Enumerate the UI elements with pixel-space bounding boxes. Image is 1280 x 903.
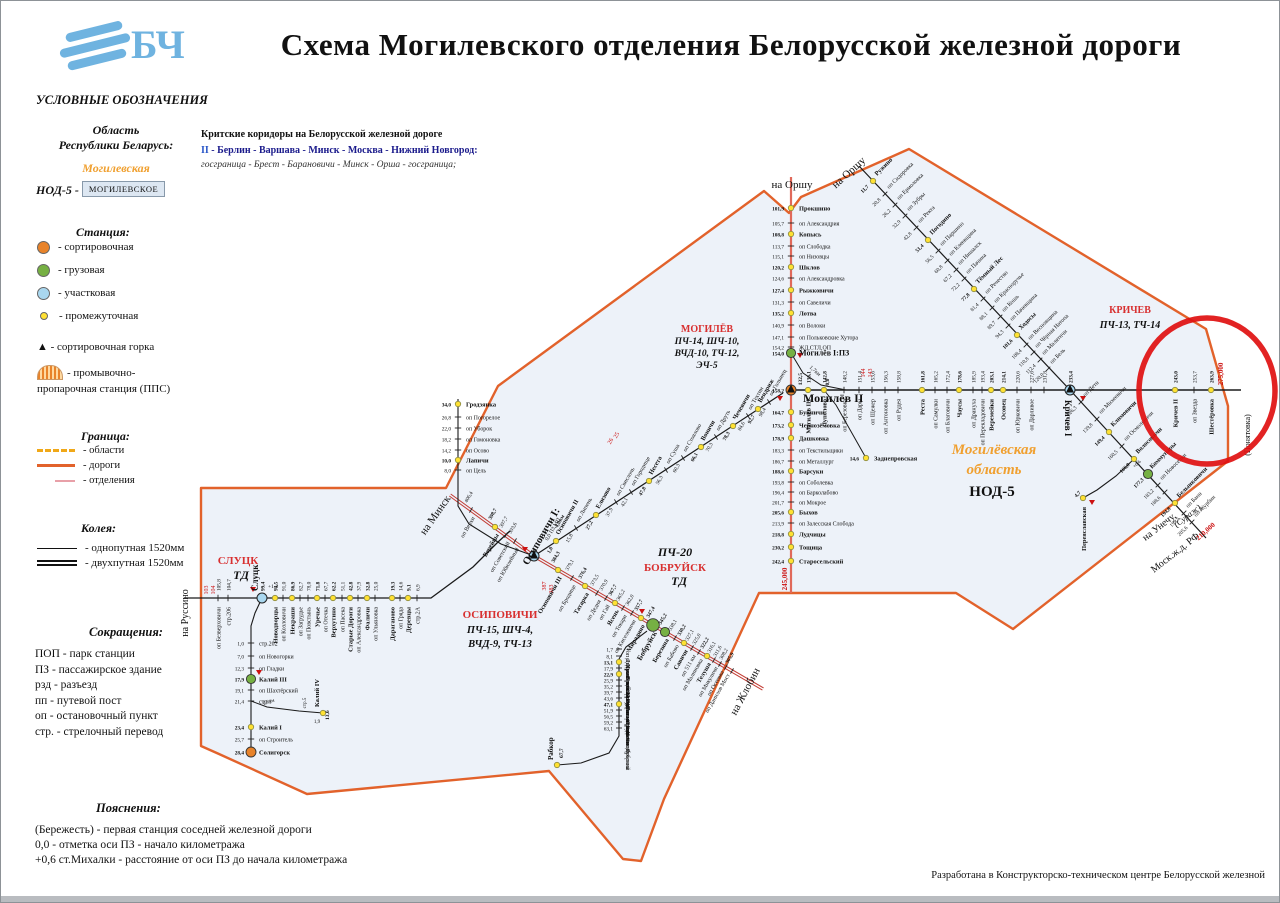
map-label-387: 387: [542, 582, 548, 591]
station-km-Буйничи: 164,7: [772, 411, 784, 417]
station-km-оп Березовка: 148,2: [843, 371, 849, 383]
station-name-оп Савеличи: оп Савеличи: [799, 301, 832, 307]
station-km-стр.1: 21,4: [235, 700, 245, 706]
station-dot-Ясень: [612, 600, 617, 605]
station-km-231,8: 231,8: [1043, 371, 1049, 383]
station-km-Солигорск: 28,4: [235, 751, 245, 757]
station-km-оп Слободка: 113,7: [772, 245, 784, 251]
station-name-оп Гладки: оп Гладки: [259, 667, 285, 673]
station-name-оп Пасека: оп Пасека: [341, 607, 347, 633]
map-label-ПЧ-15, ШЧ-4,: ПЧ-15, ШЧ-4,: [466, 625, 533, 636]
map-label-ОСИПОВИЧИ: ОСИПОВИЧИ: [463, 609, 538, 621]
station-dot-Коммунары: [1143, 469, 1152, 478]
station-name-Прокшино: Прокшино: [799, 206, 830, 213]
station-km-Дашковка: 178,9: [772, 437, 784, 443]
station-name-Деревцы: Деревцы: [406, 607, 413, 633]
station-dot-Климовичи: [1106, 429, 1111, 434]
station-dot-Дараганово: [389, 595, 394, 600]
station-km-оп Александрия: 105,7: [772, 222, 784, 228]
station-name-оп Металлург: оп Металлург: [799, 460, 834, 466]
station-dot-Несета: [646, 478, 651, 483]
station-km-оп Юрковичи: 220,6: [1016, 371, 1022, 383]
station-km-оп Савеличи: 131,3: [772, 301, 784, 307]
station-km-оп Дедново: 1,7: [606, 648, 613, 654]
station-dot-Верейцы: [492, 524, 497, 529]
station-name-оп Самулки: оп Самулки: [934, 398, 940, 428]
road-border: [201, 149, 1228, 861]
station-km-Фаличи: 32,8: [366, 581, 372, 591]
station-dot-Татарка: [582, 583, 587, 588]
map-label-Калий IV: Калий IV: [314, 679, 321, 707]
station-dot-Чаусы: [956, 387, 961, 392]
map-label-ВЧД-9, ТЧ-13: ВЧД-9, ТЧ-13: [467, 639, 532, 650]
station-dot-Дашковка: [788, 435, 793, 440]
map-label-143: 143: [868, 369, 874, 378]
station-name-стр.2А: стр.2А: [416, 606, 422, 624]
station-name-оп Текстильщики: оп Текстильщики: [799, 449, 844, 455]
map-label-210,000: 210,000: [1195, 521, 1218, 543]
station-name-оп Рудея: оп Рудея: [897, 399, 903, 421]
station-name-Шестёровка: Шестёровка: [1209, 398, 1216, 434]
station-km-Осовец: 214,1: [1002, 371, 1008, 383]
station-dot-Лапичи: [455, 457, 460, 462]
station-dot-Уречье: [314, 595, 319, 600]
station-name-Быхов: Быхов: [799, 510, 818, 517]
footer-credit: Разработана в Конструкторско-техническом…: [931, 870, 1265, 881]
map-label-144: 144: [861, 369, 867, 378]
station-km-оп Козловичи: 91,0: [282, 581, 288, 591]
map-label-ЭЧ-5: ЭЧ-5: [696, 361, 717, 371]
station-km-оп Дарливое: 227,6: [1030, 371, 1036, 383]
station-dot-Осиповичи II: [553, 538, 558, 543]
station-dot-Калий I: [248, 724, 253, 729]
station-dot-Ратмировичи: [616, 701, 621, 706]
station-dot-Лотва: [788, 310, 793, 315]
station-dot-Могилёв I:ПЗ: [786, 348, 795, 357]
station-name-Фаличи: Фаличи: [365, 607, 372, 631]
map-label-+1,3: +1,3: [268, 584, 278, 590]
station-name-оп Мокрое: оп Мокрое: [799, 501, 826, 507]
station-name-оп Ульяновка: оп Ульяновка: [374, 607, 380, 641]
map-label-132,5: 132,5: [798, 373, 804, 386]
station-km-Лапичи: 10,0: [442, 459, 452, 465]
map-label-104: 104: [211, 586, 217, 595]
map-label-Рабкор: Рабкор: [547, 737, 555, 760]
station-dot-Переяславская: [1080, 495, 1085, 500]
station-km-стр.2А: 6,9: [416, 584, 422, 591]
map-label-ТД: ТД: [233, 568, 250, 582]
station-name-Лапичи: Лапичи: [466, 458, 489, 465]
station-km-Старосельский: 242,4: [772, 560, 784, 566]
station-km-оп Звезда: 253,7: [1193, 371, 1199, 383]
station-dot-Реста: [919, 387, 924, 392]
station-km-оп Уборок: 22,0: [442, 427, 452, 433]
station-name-оп Низовцы: оп Низовцы: [799, 255, 829, 261]
station-name-стр.206: стр.206: [227, 607, 233, 626]
map-label-КРИЧЕВ: КРИЧЕВ: [1109, 305, 1151, 316]
station-name-Уречье: Уречье: [315, 607, 322, 627]
station-km-оп Безверховичи: 105,8: [217, 579, 223, 591]
map-label-Слуцк: Слуцк: [250, 564, 260, 591]
map-label-1,9: 1,9: [314, 720, 321, 725]
station-dot-Тёмный Лес: [971, 286, 976, 291]
station-km-оп Текстильщики: 183,3: [772, 449, 784, 455]
station-name-оп Шахтёрский: оп Шахтёрский: [259, 688, 299, 695]
station-km-оп Металлург: 186,7: [772, 460, 784, 466]
station-dot-Веремейки: [988, 387, 993, 392]
station-name-Могилёв I:ПЗ: Могилёв I:ПЗ: [799, 349, 849, 358]
map-label-245,000: 245,000: [781, 567, 789, 590]
station-name-оп Волоки: оп Волоки: [799, 324, 826, 330]
station-name-оп Барколабово: оп Барколабово: [799, 490, 838, 497]
station-km-оп Отечка: 67,7: [324, 581, 330, 591]
station-name-Реста: Реста: [920, 398, 927, 415]
station-name-оп Загрудье: оп Загрудье: [299, 607, 305, 637]
station-dot-Осовец: [1000, 387, 1005, 392]
station-name-Кричев II: Кричев II: [1173, 398, 1180, 427]
station-name-оп Погорелое: оп Погорелое: [466, 416, 501, 422]
station-dot-Телуша: [704, 653, 709, 658]
station-name-оп Щежер: оп Щежер: [871, 399, 877, 425]
station-km-оп Повстынь: 78,0: [307, 581, 313, 591]
station-name-Барсуки: Барсуки: [799, 469, 824, 476]
station-name-оп Соболевка: оп Соболевка: [799, 480, 833, 487]
station-dot-Чечевичи: [730, 423, 735, 428]
station-km-оп Цель: 8,0: [444, 469, 451, 475]
station-name-оп Дрануха: оп Дрануха: [972, 399, 978, 428]
station-dot-Погодино: [925, 237, 930, 242]
station-dot-Лудчицы: [788, 531, 793, 536]
station-dot-Кричев II: [1172, 387, 1177, 392]
station-name-Переяславская: Переяславская: [1081, 506, 1088, 550]
station-dot-Барсуки: [788, 468, 793, 473]
station-km-Дараганово: 19,3: [391, 581, 397, 591]
station-km-оп Рудея: 158,8: [897, 371, 903, 383]
map-label-383: 383: [549, 585, 555, 594]
map-label-Моск.ж.д. РФ: Моск.ж.д. РФ: [1149, 531, 1202, 576]
map-label-ПЧ-20: ПЧ-20: [657, 545, 692, 559]
station-dot-Красный Брод: [616, 659, 621, 664]
station-dot-Белынковичи: [1172, 500, 1177, 505]
station-km-Лотва: 135,2: [772, 312, 784, 318]
station-dot-Копысь: [788, 231, 793, 236]
station-name-Новодворцы: Новодворцы: [273, 607, 280, 644]
station-name-оп Строитель: оп Строитель: [259, 738, 293, 744]
station-dot-station: [554, 762, 559, 767]
station-km-Веремейки: 203,1: [990, 371, 996, 383]
station-name-оп Осово: оп Осово: [466, 449, 489, 455]
station-name-Чаусы: Чаусы: [957, 399, 964, 417]
bottom-band: [1, 896, 1279, 902]
map-label-Могилёвская: Могилёвская: [951, 442, 1037, 458]
station-km-оп Барколабово: 196,4: [772, 491, 784, 497]
station-dot-Заднепровская: [863, 455, 868, 460]
station-dot-99,4: [257, 593, 267, 603]
station-name-Заднепровская: Заднепровская: [874, 456, 918, 463]
station-dot-Чернозёмовка: [788, 422, 793, 427]
station-km-оп Волоки: 140,9: [772, 324, 784, 330]
station-km-Гродзянка: 34,0: [442, 403, 452, 409]
station-km-стр.206: 104,7: [227, 579, 233, 591]
map-label-на Руссино: на Руссино: [180, 589, 191, 636]
station-dot-Бобруйск: [647, 619, 660, 632]
station-dot-Волосовичи: [1131, 456, 1136, 461]
station-dot-Гродзянка: [455, 401, 460, 406]
station-name-оп Благовичи: оп Благовичи: [946, 398, 952, 433]
station-km-оп Дрануха: 185,9: [972, 371, 978, 383]
station-dot-Мирадино: [638, 615, 643, 620]
station-km-Старые Дороги: 42,8: [349, 581, 355, 591]
station-dot-Новодворцы: [272, 595, 277, 600]
station-dot-Тощица: [788, 544, 793, 549]
station-km-Могилёв I:ПЗ: 154,0: [772, 352, 784, 358]
map-label-ТД: ТД: [671, 574, 688, 588]
station-km-оп Загрудье: 82,7: [299, 581, 305, 591]
station-km-Чернозёмовка: 173,2: [772, 424, 784, 430]
station-name-стр.202: стр.202: [259, 642, 278, 648]
station-dot-Старые Дороги: [347, 595, 352, 600]
station-km-оп Мокрое: 201,7: [772, 501, 784, 507]
station-dot-Верхутино: [330, 595, 335, 600]
station-km-оп Ульяновка: 25,0: [374, 581, 380, 591]
station-dot-Калий III: [246, 674, 255, 683]
station-km-Рыжковичи: 127,4: [772, 289, 784, 295]
station-km-оп Погорелое: 26,8: [442, 416, 452, 422]
map-label-стр.5: стр.5: [303, 697, 308, 708]
station-dot-Прокшино: [788, 205, 793, 210]
station-name-оп Перекладовичи: оп Перекладовичи: [981, 398, 987, 445]
station-name-оп Звезда: оп Звезда: [1193, 399, 1199, 423]
station-name-оп Новогорки: оп Новогорки: [259, 655, 294, 661]
station-name-Рыжковичи: Рыжковичи: [799, 288, 834, 295]
station-name-Копысь: Копысь: [799, 232, 822, 239]
station-dot-Савичи: [681, 640, 686, 645]
station-name-оп Александровка: оп Александровка: [357, 607, 363, 653]
station-km-оп Низовцы: 115,1: [772, 255, 784, 261]
station-dot-Воничи: [698, 444, 703, 449]
map-label-МОГИЛЁВ: МОГИЛЁВ: [681, 322, 733, 335]
station-name-оп Уборок: оп Уборок: [466, 426, 492, 433]
station-dot-Шклов: [788, 264, 793, 269]
map-label-Кричев I: Кричев I: [1063, 400, 1073, 437]
station-name-оп Октябрьский: оп Октябрьский: [624, 730, 631, 771]
station-name-оп Козловичи: оп Козловичи: [282, 606, 288, 641]
station-name-Лудчицы: Лудчицы: [799, 532, 826, 539]
station-dot-Солигорск: [246, 747, 256, 757]
station-km-233,4: 233,4: [1069, 371, 1075, 383]
station-km-Деревцы: 9,1: [407, 584, 413, 591]
station-dot-Деревцы: [405, 595, 410, 600]
station-km-Калий III: 17,9: [235, 678, 245, 684]
station-km-оп Пасека: 51,1: [341, 581, 347, 591]
map-label-13,6: 13,6: [325, 710, 331, 720]
station-name-оп Юрковичи: оп Юрковичи: [1016, 398, 1022, 433]
station-name-оп Безверховичи: оп Безверховичи: [217, 606, 223, 649]
station-dot-Буйничи: [788, 409, 793, 414]
station-name-Дашковка: Дашковка: [799, 436, 830, 443]
station-name-оп Повстынь: оп Повстынь: [307, 607, 313, 640]
station-km-Могилёв III: 136,1: [807, 371, 813, 383]
station-km-оп Октябрьский: 63,1: [604, 727, 614, 733]
station-km-оп Гряда: 14,6: [399, 581, 405, 591]
station-name-Веремейки: Веремейки: [989, 399, 996, 431]
station-name-оп Отечка: оп Отечка: [324, 607, 330, 633]
station-km-оп Залесская Слобода: 213,9: [772, 522, 784, 528]
station-name-оп Залесская Слобода: оп Залесская Слобода: [799, 521, 854, 528]
station-km-Тощица: 230,2: [772, 546, 784, 552]
station-name-оп Цель: оп Цель: [466, 469, 486, 475]
station-name-Гродзянка: Гродзянка: [466, 402, 497, 409]
station-name-Осовец: Осовец: [1001, 399, 1008, 420]
map-label-ПЧ-14, ШЧ-10,: ПЧ-14, ШЧ-10,: [674, 337, 740, 347]
station-km-Верхутино: 62,2: [332, 581, 338, 591]
station-km-оп Гомоновка: 18,2: [442, 438, 452, 444]
railway-map: Прокшино101,9оп Александрия105,7Копысь10…: [1, 1, 1280, 903]
map-label-103: 103: [204, 586, 210, 595]
station-km-оп Гладки: 12,3: [235, 667, 245, 673]
map-label-НОД-5: НОД-5: [969, 484, 1014, 500]
station-km-Реста: 161,8: [921, 371, 927, 383]
station-km-Чаусы: 178,6: [958, 371, 964, 383]
station-km-Некраши: 86,9: [291, 581, 297, 591]
station-name-оп Слободка: оп Слободка: [799, 244, 831, 251]
station-km-оп Перекладовичи: 193,4: [981, 371, 987, 383]
station-name-оп Александровка: оп Александровка: [799, 277, 845, 283]
station-dot-Осиповичи III: [555, 567, 560, 572]
station-dot-Фаличи: [364, 595, 369, 600]
station-km-оп Польковские Хутора: 147,1: [772, 336, 784, 342]
map-label-на Оршу: на Оршу: [772, 179, 813, 191]
station-dot-Рыжковичи: [788, 287, 793, 292]
station-km-стр.202: 1,0: [237, 642, 244, 648]
station-dot-Елизово: [593, 512, 598, 517]
station-dot-Быхов: [788, 509, 793, 514]
station-km-Заднепровская: 14,6: [850, 457, 860, 463]
station-km-оп Соболевка: 193,8: [772, 481, 784, 487]
station-km-оп Александровка: 124,6: [772, 277, 784, 283]
station-dot-Некраши: [289, 595, 294, 600]
station-km-оп Александровка: 37,9: [357, 581, 363, 591]
station-km-Прокшино: 101,9: [772, 207, 784, 213]
map-label-275,000: 275,000: [1217, 362, 1225, 385]
map-label-ПЧ-13, ТЧ-14: ПЧ-13, ТЧ-14: [1099, 320, 1161, 331]
station-km-99,4: 99,4: [261, 581, 267, 591]
station-km-оп Антоновка: 156,3: [884, 371, 890, 383]
station-dot-Ходосы: [1014, 332, 1019, 337]
document-page: БЧ Схема Могилевского отделения Белорусс…: [0, 0, 1280, 903]
map-label-область: область: [967, 462, 1022, 478]
station-dot-Ружино: [870, 178, 875, 183]
station-km-Барсуки: 188,6: [772, 470, 784, 476]
station-name-оп Гомоновка: оп Гомоновка: [466, 438, 501, 444]
station-name-Некраши: Некраши: [290, 607, 297, 635]
station-name-оп Гряда: оп Гряда: [399, 607, 405, 629]
station-name-Шклов: Шклов: [799, 265, 820, 272]
station-dot-Шестёровка: [1208, 387, 1213, 392]
map-label-БОБРУЙСК: БОБРУЙСК: [644, 562, 706, 574]
station-name-Тощица: Тощица: [799, 545, 823, 552]
station-name-Калий III: Калий III: [259, 677, 287, 684]
map-label-Могилёв II: Могилёв II: [803, 391, 864, 405]
station-km-Лудчицы: 218,8: [772, 533, 784, 539]
station-km-Копысь: 108,8: [772, 233, 784, 239]
station-name-Старые Дороги: Старые Дороги: [348, 607, 355, 652]
station-name-Старосельский: Старосельский: [799, 559, 844, 566]
station-dot-Старосельский: [788, 558, 793, 563]
station-name-оп Польковские Хутора: оп Польковские Хутора: [799, 336, 858, 342]
station-km-Шестёровка: 263,9: [1210, 371, 1216, 383]
station-name-оп Дарливое: оп Дарливое: [1030, 399, 1036, 431]
station-km-оп Осово: 14,2: [442, 449, 452, 455]
map-label-ВЧД-10, ТЧ-12,: ВЧД-10, ТЧ-12,: [674, 349, 740, 359]
railway-schema-svg: Прокшино101,9оп Александрия105,7Копысь10…: [1, 1, 1280, 903]
map-label-0,0: 0,0: [825, 378, 831, 385]
station-km-оп Благовичи: 172,4: [946, 371, 952, 383]
station-km-Калий I: 23,4: [235, 726, 245, 732]
station-km-Быхов: 205,6: [772, 511, 784, 517]
station-name-Лотва: Лотва: [799, 311, 817, 318]
station-km-оп Строитель: 25,7: [235, 738, 245, 744]
station-dot-Брожа: [616, 671, 621, 676]
station-name-Калий I: Калий I: [259, 725, 282, 732]
station-km-оп Новогорки: 7,0: [237, 655, 244, 661]
map-label-67,7: 67,7: [559, 748, 565, 758]
station-name-Солигорск: Солигорск: [259, 750, 290, 757]
station-name-оп Александрия: оп Александрия: [799, 222, 840, 228]
station-name-Дараганово: Дараганово: [390, 607, 397, 641]
station-km-Кричев II: 243,0: [1174, 371, 1180, 383]
station-km-оп Шахтёрский: 19,1: [235, 689, 245, 695]
station-km-Уречье: 71,8: [316, 581, 322, 591]
station-km-Шклов: 120,2: [772, 266, 784, 272]
station-km-оп Самулки: 165,2: [934, 371, 940, 383]
station-name-оп Антоновка: оп Антоновка: [884, 399, 890, 434]
station-name-Верхутино: Верхутино: [331, 607, 338, 638]
